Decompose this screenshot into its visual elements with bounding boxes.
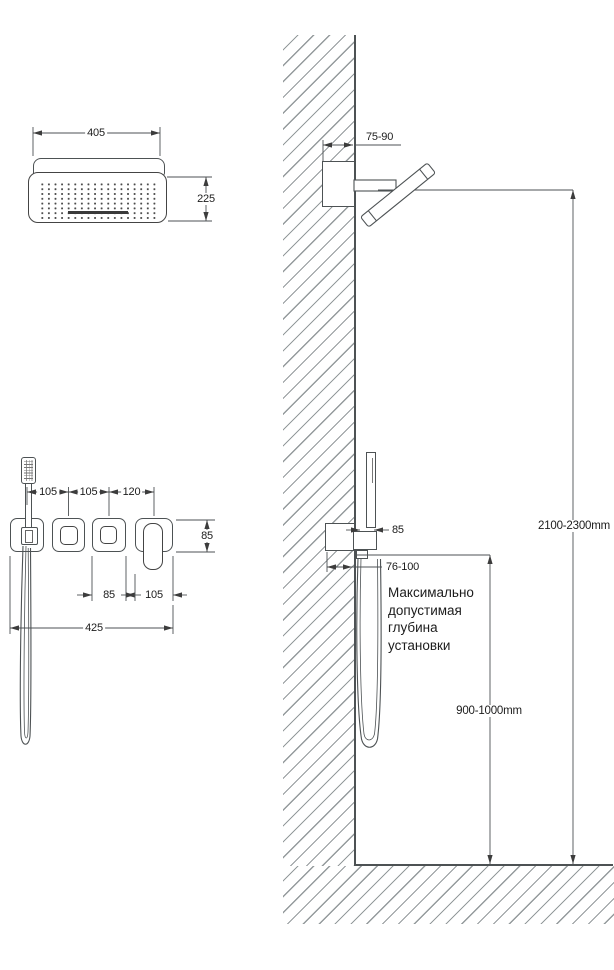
dim-label-85-holder: 85 [390,524,406,536]
dim-label-105-lever: 105 [143,589,165,601]
dim-label-425: 425 [83,622,105,634]
note-line-2: допустимая [388,602,474,620]
dim-label-85-height: 85 [199,530,215,542]
note-line-4: установки [388,637,474,655]
installation-drawing: 405 225 105 105 120 85 85 105 425 75-90 … [0,0,614,970]
dim-label-900-1000: 900-1000mm [454,705,524,717]
note-line-1: Максимально [388,584,474,602]
shower-arm [354,180,396,191]
dim-label-405: 405 [85,127,107,139]
hose-right-inner [360,558,378,740]
shower-head-side [360,163,435,227]
hose-left-inner [24,546,29,738]
hose-left-outer [20,546,31,744]
dim-label-120: 120 [121,486,143,498]
dim-label-75-90: 75-90 [364,131,395,143]
dim-label-76-100: 76-100 [384,561,421,573]
dim-label-105b: 105 [78,486,100,498]
dim-label-105a: 105 [37,486,59,498]
dim-label-2100-2300: 2100-2300mm [536,520,612,532]
dim-label-85-knob: 85 [101,589,117,601]
dim-label-225: 225 [195,193,217,205]
shower-head-body [360,163,435,227]
note-line-3: глубина [388,619,474,637]
linework-layer [0,0,614,970]
installation-depth-note: Максимально допустимая глубина установки [388,584,474,654]
